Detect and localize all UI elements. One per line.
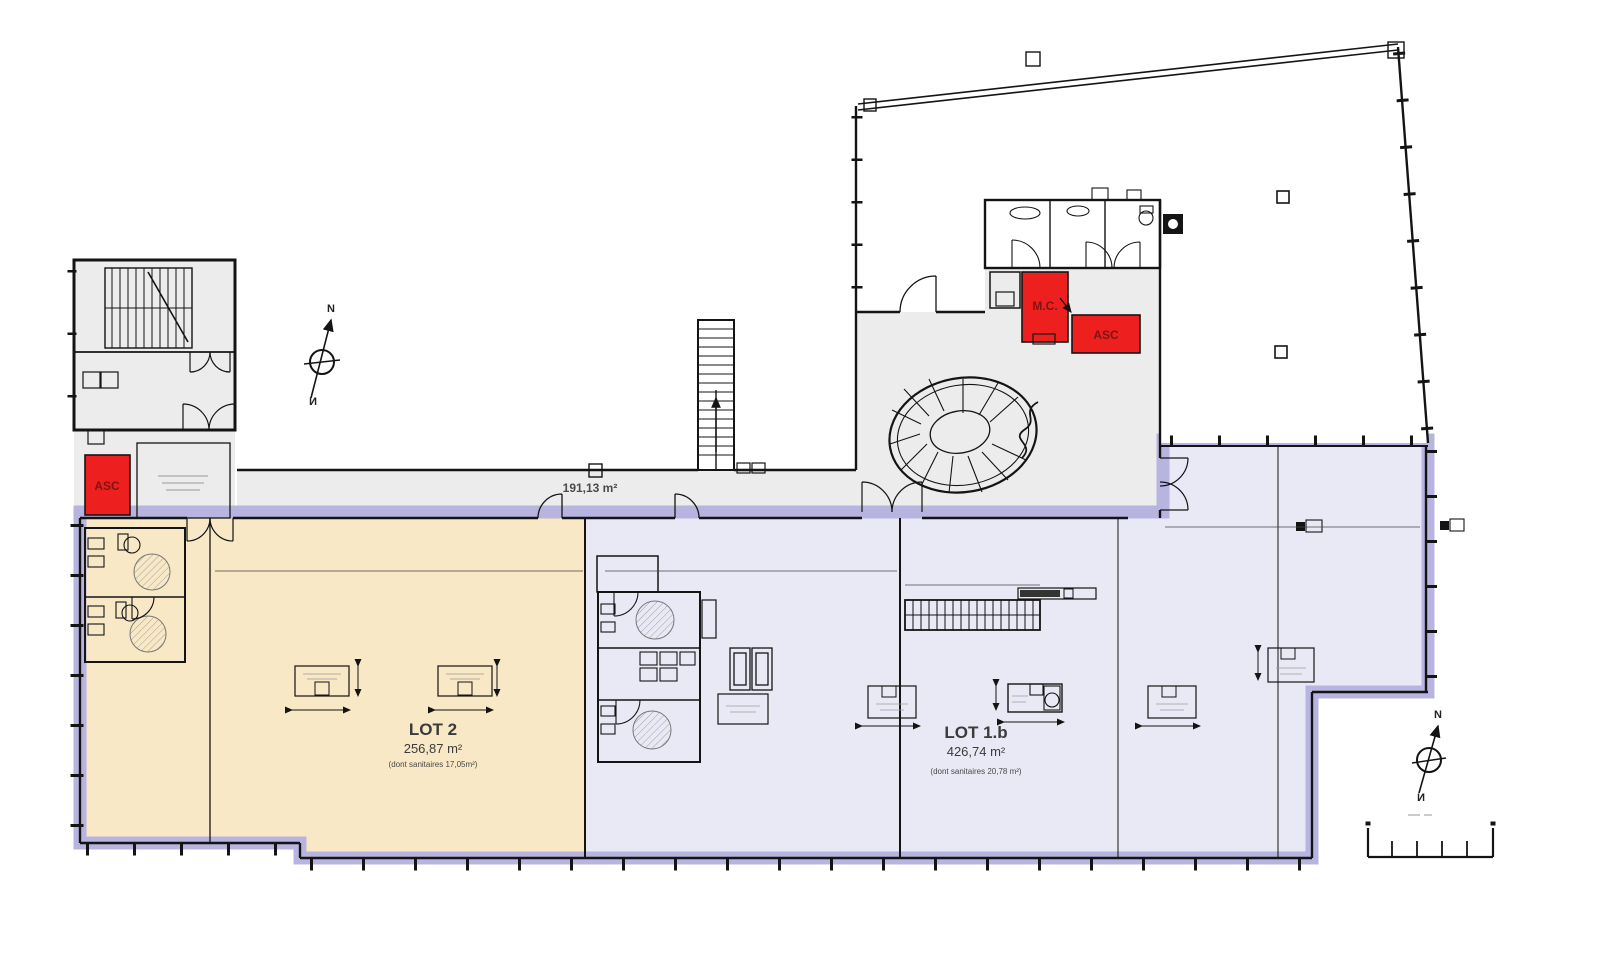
straight-stair <box>698 320 734 470</box>
lot2-area: 256,87 m² <box>404 741 463 756</box>
north-compass-2: N N <box>1412 709 1446 804</box>
elevator-core: ASC <box>1072 315 1140 353</box>
lot1b-name: LOT 1.b <box>944 723 1007 742</box>
elevator-left: ASC <box>85 455 130 515</box>
service-duct-label: M.C. <box>1032 299 1057 313</box>
service-duct: M.C. <box>1022 272 1068 344</box>
scale-bar <box>1366 815 1495 857</box>
floor-plan-page: ASC <box>0 0 1600 967</box>
lot2-note: (dont sanitaires 17,05m²) <box>389 760 478 769</box>
lot1b-note: (dont sanitaires 20,78 m²) <box>930 767 1021 776</box>
compass-n-mirrored: N <box>1417 792 1425 804</box>
north-compass: N N <box>304 303 340 408</box>
floor-plan-drawing: ASC <box>0 0 1600 967</box>
elevator-left-label: ASC <box>94 479 120 493</box>
compass-n-label: N <box>1434 709 1442 721</box>
circulation-area-label: 191,13 m² <box>563 481 618 495</box>
elevator-core-label: ASC <box>1093 328 1119 342</box>
compass-n-label: N <box>327 303 335 315</box>
lot2-name: LOT 2 <box>409 720 457 739</box>
compass-n-mirrored: N <box>309 396 317 408</box>
lot1b-area: 426,74 m² <box>947 744 1006 759</box>
